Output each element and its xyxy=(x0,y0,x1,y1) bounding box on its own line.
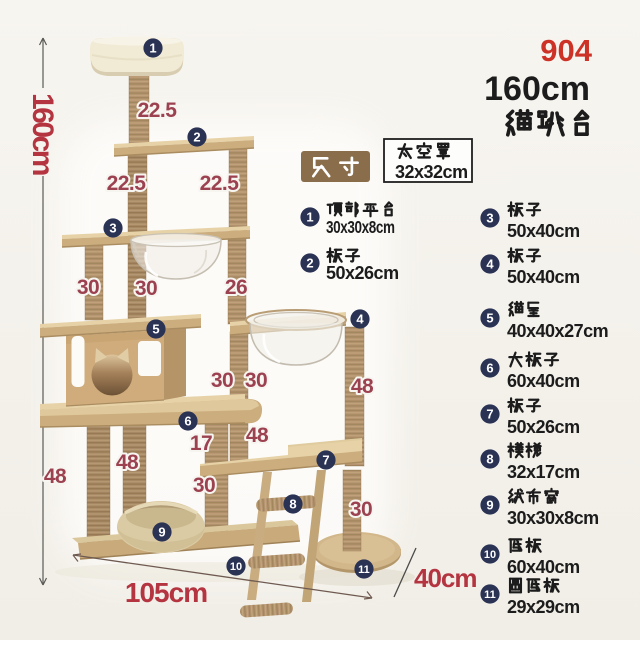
svg-text:3: 3 xyxy=(109,221,116,236)
svg-text:9: 9 xyxy=(486,498,493,513)
svg-text:26: 26 xyxy=(225,276,247,299)
svg-text:60x40cm: 60x40cm xyxy=(507,371,580,391)
svg-text:4: 4 xyxy=(356,312,364,327)
svg-text:48: 48 xyxy=(246,424,269,447)
svg-text:22.5: 22.5 xyxy=(138,99,178,122)
svg-text:30: 30 xyxy=(77,276,99,299)
svg-text:50x26cm: 50x26cm xyxy=(507,417,580,437)
svg-text:48: 48 xyxy=(116,451,139,474)
svg-text:11: 11 xyxy=(484,589,496,601)
svg-text:7: 7 xyxy=(486,407,493,422)
svg-text:30: 30 xyxy=(135,277,157,300)
svg-text:40cm: 40cm xyxy=(414,563,477,593)
svg-text:50x40cm: 50x40cm xyxy=(507,267,580,287)
svg-text:30: 30 xyxy=(211,369,233,392)
svg-text:2: 2 xyxy=(306,256,313,271)
svg-text:30: 30 xyxy=(245,369,267,392)
svg-text:30: 30 xyxy=(193,474,215,497)
svg-text:4: 4 xyxy=(486,257,494,272)
svg-text:5: 5 xyxy=(152,322,159,337)
svg-text:8: 8 xyxy=(486,452,493,467)
svg-text:22.5: 22.5 xyxy=(107,172,147,195)
svg-text:11: 11 xyxy=(358,564,370,576)
svg-text:160cm: 160cm xyxy=(26,93,59,175)
svg-text:1: 1 xyxy=(149,41,156,56)
svg-text:8: 8 xyxy=(289,497,296,512)
svg-text:48: 48 xyxy=(351,375,374,398)
svg-text:17: 17 xyxy=(190,432,212,455)
svg-text:9: 9 xyxy=(158,525,165,540)
svg-text:29x29cm: 29x29cm xyxy=(507,597,580,617)
svg-text:2: 2 xyxy=(193,130,200,145)
svg-text:32x32cm: 32x32cm xyxy=(395,162,468,182)
svg-text:22.5: 22.5 xyxy=(200,172,240,195)
svg-text:32x17cm: 32x17cm xyxy=(507,462,580,482)
svg-text:50x40cm: 50x40cm xyxy=(507,221,580,241)
svg-text:48: 48 xyxy=(44,465,67,488)
svg-text:7: 7 xyxy=(322,453,329,468)
svg-text:1: 1 xyxy=(306,210,313,225)
svg-text:30x30x8cm: 30x30x8cm xyxy=(507,508,599,528)
svg-text:3: 3 xyxy=(486,211,493,226)
svg-text:10: 10 xyxy=(484,549,496,561)
svg-text:904: 904 xyxy=(540,33,592,68)
svg-text:60x40cm: 60x40cm xyxy=(507,557,580,577)
svg-text:6: 6 xyxy=(184,414,191,429)
svg-text:160cm: 160cm xyxy=(484,70,590,108)
svg-text:5: 5 xyxy=(486,311,493,326)
svg-text:40x40x27cm: 40x40x27cm xyxy=(507,321,608,341)
svg-text:30x30x8cm: 30x30x8cm xyxy=(326,218,395,237)
svg-text:50x26cm: 50x26cm xyxy=(326,263,399,283)
svg-text:6: 6 xyxy=(486,361,493,376)
svg-text:105cm: 105cm xyxy=(125,577,207,608)
svg-text:30: 30 xyxy=(350,498,372,521)
svg-text:10: 10 xyxy=(230,561,242,573)
